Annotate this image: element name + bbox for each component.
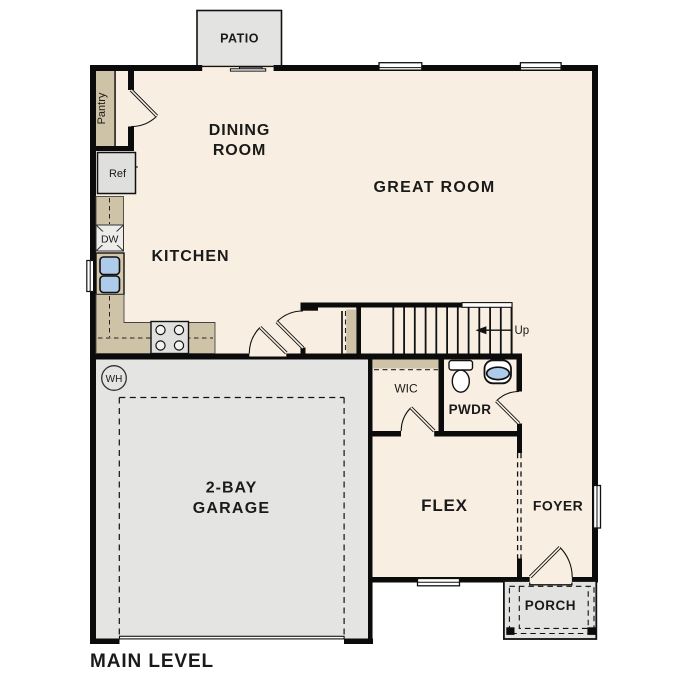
svg-text:MAIN LEVEL: MAIN LEVEL [90,651,214,672]
svg-text:KITCHEN: KITCHEN [151,248,229,265]
svg-text:PORCH: PORCH [525,598,576,613]
svg-text:Ref: Ref [109,168,127,180]
svg-text:FOYER: FOYER [533,498,583,514]
svg-text:ROOM: ROOM [213,142,266,159]
svg-text:GREAT ROOM: GREAT ROOM [373,179,495,196]
svg-text:DW: DW [101,234,119,246]
svg-text:Pantry: Pantry [96,92,108,124]
svg-text:WH: WH [106,374,123,385]
svg-text:Up: Up [515,325,530,337]
svg-text:PWDR: PWDR [449,402,492,417]
svg-text:2-BAY: 2-BAY [206,480,258,497]
svg-text:WIC: WIC [394,382,418,396]
svg-text:DINING: DINING [209,122,270,139]
svg-text:GARAGE: GARAGE [193,500,270,517]
svg-text:PATIO: PATIO [220,32,259,46]
svg-text:FLEX: FLEX [421,496,468,515]
